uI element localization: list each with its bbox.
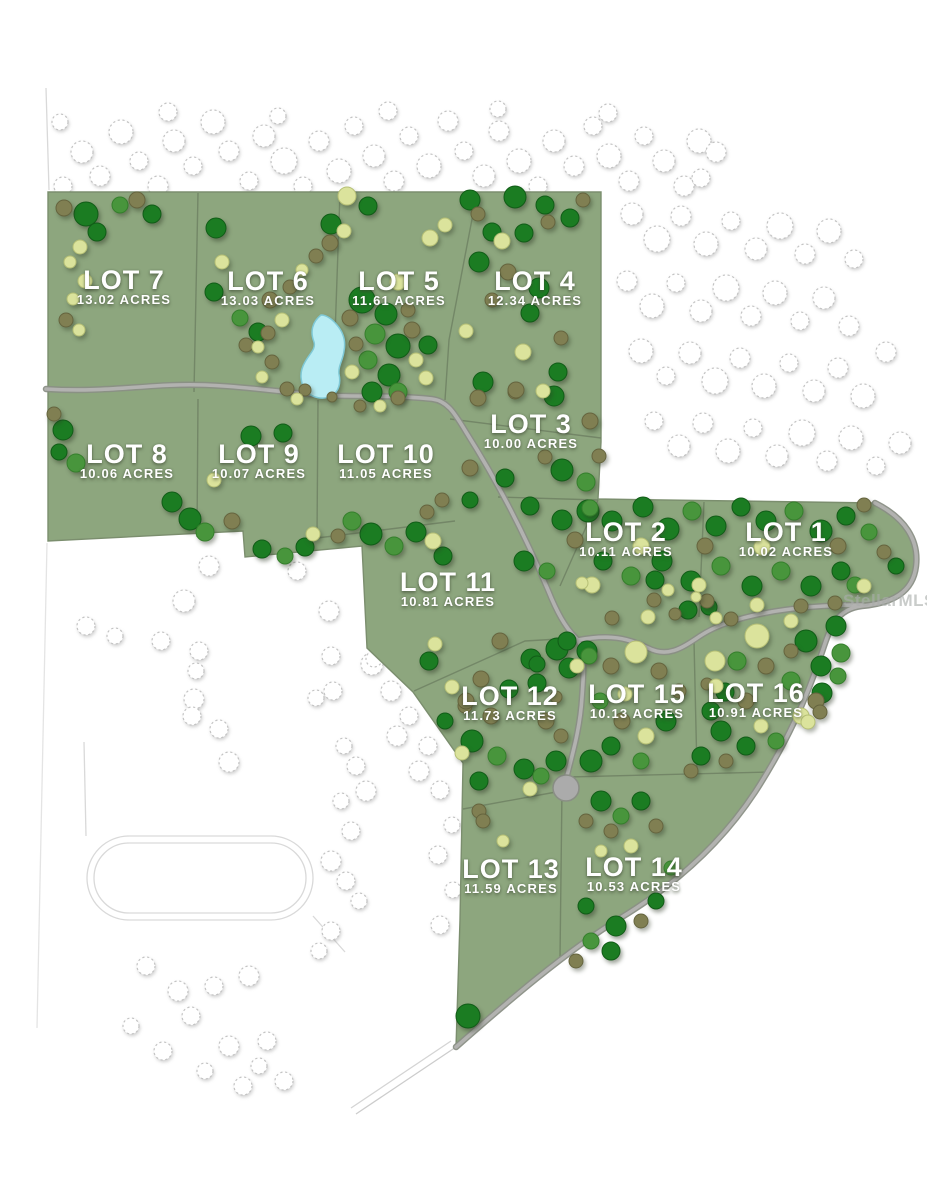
plat-map-image: LOT 713.02 ACRES LOT 613.03 ACRES LOT 51… [0, 0, 927, 1200]
map-canvas [0, 0, 927, 1200]
cul-de-sac [553, 775, 579, 801]
mls-watermark: StellarMLS [843, 591, 927, 611]
